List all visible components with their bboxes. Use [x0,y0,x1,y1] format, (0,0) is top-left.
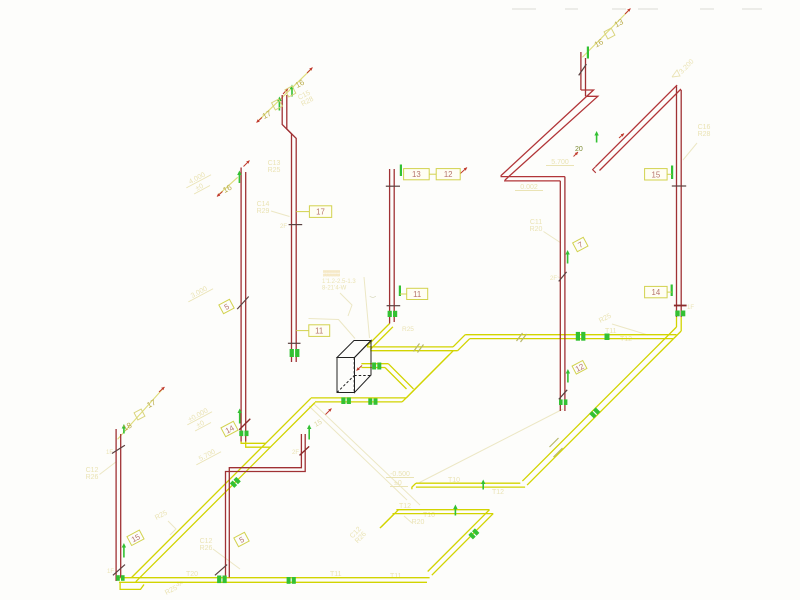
svg-text:R29: R29 [257,208,270,215]
svg-text:2F: 2F [280,224,287,230]
svg-text:T12: T12 [492,489,504,496]
svg-text:R20: R20 [412,519,425,526]
svg-text:1F: 1F [107,569,114,575]
svg-text:11: 11 [315,327,323,336]
svg-text:C14: C14 [257,201,270,208]
svg-text:C12: C12 [200,538,213,545]
svg-text:T20: T20 [186,571,198,578]
svg-text:T12: T12 [620,336,632,343]
svg-text:C11: C11 [530,219,542,226]
svg-text:8-21’4-W: 8-21’4-W [322,286,347,292]
svg-text:‿: ‿ [369,291,376,298]
svg-text:T11: T11 [330,571,342,578]
svg-text:2F: 2F [550,276,557,282]
svg-text:±0: ±0 [394,480,402,487]
svg-text:2F: 2F [292,450,299,456]
svg-text:17: 17 [316,208,325,217]
svg-text:R20: R20 [530,226,543,233]
svg-text:R26: R26 [200,545,213,552]
svg-text:15: 15 [652,170,661,179]
svg-text:0.002: 0.002 [520,184,538,191]
svg-text:R28: R28 [698,131,711,138]
svg-text:11: 11 [413,290,421,299]
svg-text:5.700: 5.700 [551,159,569,166]
svg-text:1F: 1F [687,305,694,311]
svg-text:▒▒▒▒: ▒▒▒▒ [323,270,341,277]
svg-text:14: 14 [652,288,661,297]
svg-text:C12: C12 [86,467,99,474]
svg-text:12: 12 [444,170,453,179]
svg-text:13: 13 [412,170,421,179]
svg-text:T12: T12 [399,503,411,510]
svg-text:R25: R25 [268,167,281,174]
svg-text:-0.500: -0.500 [390,471,410,478]
svg-text:C16: C16 [698,124,711,131]
svg-text:20: 20 [575,146,583,153]
svg-text:R26: R26 [86,474,99,481]
svg-text:T11: T11 [390,573,402,580]
svg-text:R25: R25 [402,326,414,333]
svg-text:1’1.2-2.5-1.3: 1’1.2-2.5-1.3 [322,279,356,285]
svg-text:C13: C13 [268,160,281,167]
